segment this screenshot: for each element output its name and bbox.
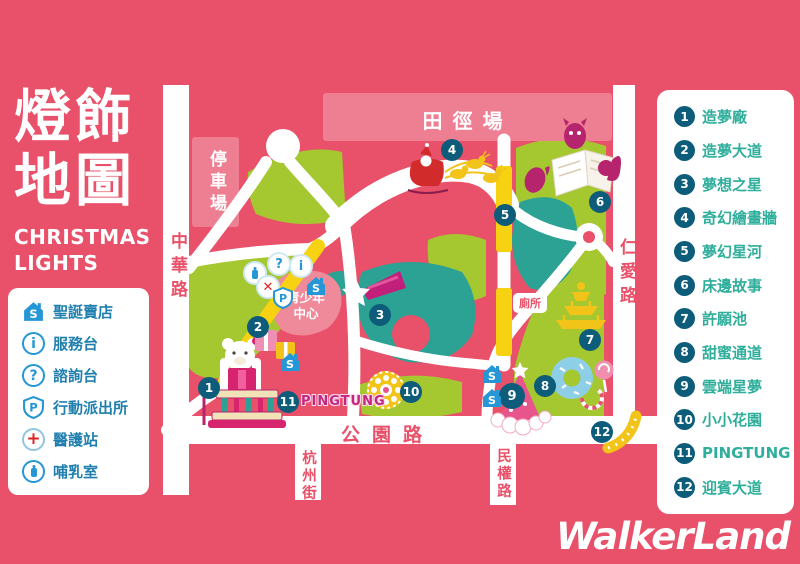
christmas-shop-house-icon: S	[481, 363, 503, 385]
pond-island	[392, 315, 430, 353]
christmas-shop-house-icon: S	[481, 387, 503, 409]
map-marker-7: 7	[579, 329, 601, 351]
attraction-label: 奇幻繪畫牆	[702, 207, 777, 228]
svg-text:S: S	[29, 307, 37, 321]
map-marker-3: 3	[369, 304, 391, 326]
christmas-shop-house-icon: S	[305, 275, 327, 297]
attraction-number-badge: 3	[674, 174, 695, 195]
poster-title: 燈飾 地圖 CHRISTMAS LIGHTS	[14, 86, 151, 276]
christmas-shop-house-icon: S	[22, 300, 45, 323]
attraction-number-badge: 11	[674, 443, 695, 464]
legend-label: 行動派出所	[53, 397, 128, 418]
map-marker-2: 2	[247, 316, 269, 338]
attraction-label: 小小花園	[702, 409, 762, 430]
title-line1: 燈飾	[14, 86, 151, 150]
attraction-item-9: 9雲端星夢	[674, 376, 794, 397]
attraction-number-badge: 5	[674, 241, 695, 262]
attraction-item-5: 5夢幻星河	[674, 241, 794, 262]
police-shield-icon: P	[272, 287, 294, 309]
attraction-label: 造夢大道	[702, 140, 762, 161]
wishing-fountain-illustration	[556, 282, 606, 329]
legend-item-question: ? 諮詢台	[22, 364, 149, 387]
attraction-number-badge: 7	[674, 308, 695, 329]
map-marker-12: 12	[591, 421, 613, 443]
road-label-hangzhou: 杭州街	[298, 450, 319, 503]
attraction-label: 雲端星夢	[702, 376, 762, 397]
svg-text:S: S	[488, 394, 496, 407]
shooting-star-illustration	[342, 271, 406, 306]
attraction-label: 許願池	[702, 308, 747, 329]
svg-text:S: S	[286, 358, 294, 371]
christmas-lights-map-poster: 田徑場 停車場 青少年 中心 廁所 PINGTUNG 中華路 仁愛路 公園路 杭…	[0, 0, 800, 564]
legend-label: 聖誕賣店	[53, 301, 113, 322]
question-icon: ?	[267, 252, 291, 276]
attraction-item-6: 6床邊故事	[674, 275, 794, 296]
legend-item-nursing: 哺乳室	[22, 460, 149, 483]
medical-cross-icon: +	[22, 428, 45, 451]
legend-item-medical: + 醫護站	[22, 428, 149, 451]
map-marker-11: 11	[277, 391, 299, 413]
attraction-number-badge: 12	[674, 477, 695, 498]
nursing-bottle-icon	[22, 460, 45, 483]
attraction-number-badge: 1	[674, 106, 695, 127]
attraction-number-badge: 6	[674, 275, 695, 296]
legend-label: 諮詢台	[53, 365, 98, 386]
map-marker-1: 1	[198, 377, 220, 399]
parking-lot-label: 停車場	[204, 150, 229, 216]
attraction-item-2: 2造夢大道	[674, 140, 794, 161]
attraction-item-11: 11PINGTUNG	[674, 443, 794, 464]
attraction-label: PINGTUNG	[702, 444, 790, 462]
road-label-gongyuan: 公園路	[341, 420, 434, 447]
road-label-zhonghua: 中華路	[165, 232, 190, 304]
police-shield-icon: P	[22, 396, 45, 419]
attraction-number-badge: 8	[674, 342, 695, 363]
attraction-number-badge: 2	[674, 140, 695, 161]
walkerland-logo: WalkerLand	[556, 515, 790, 558]
road-label-renai: 仁愛路	[614, 238, 639, 310]
attractions-list-panel: 1造夢廠 2造夢大道 3夢想之星 4奇幻繪畫牆 5夢幻星河 6床邊故事 7許願池…	[657, 90, 794, 514]
map-marker-4: 4	[441, 139, 463, 161]
subtitle-line1: CHRISTMAS	[14, 224, 151, 250]
attraction-item-7: 7許願池	[674, 308, 794, 329]
poster-subtitle: CHRISTMAS LIGHTS	[14, 224, 151, 277]
legend-label: 服務台	[53, 333, 98, 354]
attraction-number-badge: 9	[674, 376, 695, 397]
info-icon: i	[22, 332, 45, 355]
attraction-label: 夢幻星河	[702, 241, 762, 262]
legend-item-shop: S 聖誕賣店	[22, 300, 149, 323]
attraction-item-8: 8甜蜜通道	[674, 342, 794, 363]
title-line2: 地圖	[14, 150, 151, 214]
athletics-field-label: 田徑場	[323, 105, 612, 134]
legend-label: 哺乳室	[53, 461, 98, 482]
attraction-label: 夢想之星	[702, 174, 762, 195]
park-ponds	[308, 197, 578, 362]
map-marker-5: 5	[494, 204, 516, 226]
svg-text:S: S	[488, 370, 496, 383]
attraction-label: 床邊故事	[702, 275, 762, 296]
attraction-number-badge: 4	[674, 207, 695, 228]
legend-label: 醫護站	[53, 429, 98, 450]
map-marker-6: 6	[589, 191, 611, 213]
map-legend-panel: S 聖誕賣店 i 服務台 ? 諮詢台 P 行動派出所 + 醫護站 哺乳室	[8, 288, 149, 495]
attraction-label: 造夢廠	[702, 106, 747, 127]
attraction-item-1: 1造夢廠	[674, 106, 794, 127]
attraction-number-badge: 10	[674, 409, 695, 430]
legend-item-police: P 行動派出所	[22, 396, 149, 419]
svg-text:P: P	[29, 401, 37, 415]
question-icon: ?	[22, 364, 45, 387]
map-marker-8: 8	[534, 375, 556, 397]
subtitle-line2: LIGHTS	[14, 250, 151, 276]
attraction-item-4: 4奇幻繪畫牆	[674, 207, 794, 228]
map-marker-10: 10	[400, 381, 422, 403]
svg-text:S: S	[312, 282, 320, 295]
christmas-shop-house-icon: S	[279, 351, 301, 373]
attraction-label: 迎賓大道	[702, 477, 762, 498]
road-label-minquan: 民權路	[493, 448, 514, 501]
donut-candy-illustration	[551, 357, 614, 408]
svg-text:P: P	[279, 292, 287, 305]
legend-item-info: i 服務台	[22, 332, 149, 355]
attraction-item-10: 10小小花園	[674, 409, 794, 430]
toilet-label: 廁所	[513, 293, 547, 313]
attraction-label: 甜蜜通道	[702, 342, 762, 363]
attraction-item-12: 12迎賓大道	[674, 477, 794, 498]
pingtung-sign-label: PINGTUNG	[301, 394, 386, 409]
attraction-item-3: 3夢想之星	[674, 174, 794, 195]
